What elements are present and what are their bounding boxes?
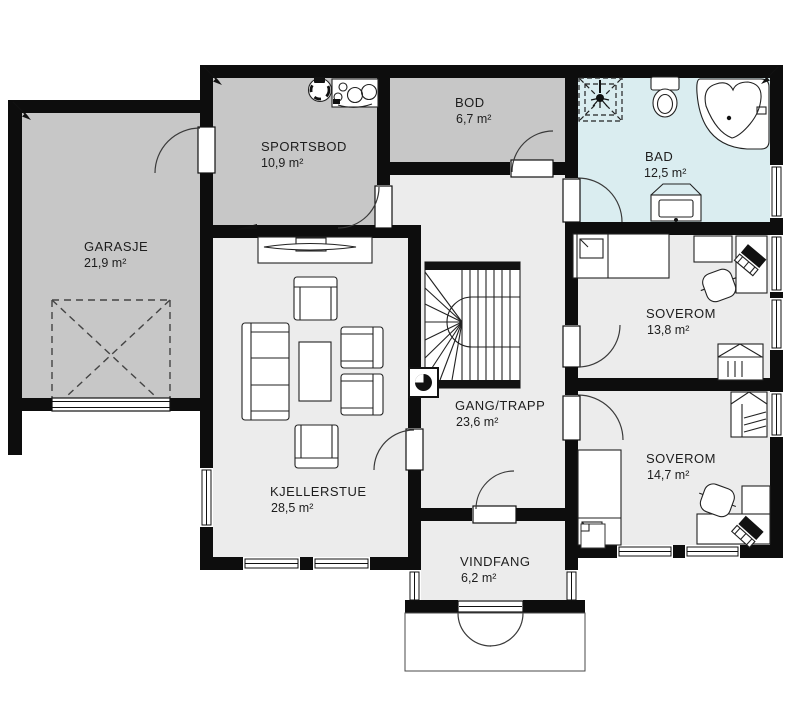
floor-plan: GARASJE 21,9 m² SPORTSBOD 10,9 m² BOD 6,… xyxy=(0,0,797,720)
room-area-sportsbod: 10,9 m² xyxy=(261,156,303,170)
armchair-icon xyxy=(341,327,383,368)
room-area-soverom2: 14,7 m² xyxy=(647,468,689,482)
exterior-step xyxy=(581,524,605,548)
room-label-soverom2: SOVEROM xyxy=(646,451,716,466)
room-area-kjellerstue: 28,5 m² xyxy=(271,501,313,515)
room-area-bod: 6,7 m² xyxy=(456,112,491,126)
armchair-icon xyxy=(295,425,338,468)
stairs-icon xyxy=(425,262,520,388)
room-label-garasje: GARASJE xyxy=(84,239,148,254)
coffee-table-icon xyxy=(299,342,331,401)
room-label-gang: GANG/TRAPP xyxy=(455,398,545,413)
wardrobe-icon xyxy=(731,392,767,437)
wardrobe-icon xyxy=(718,344,763,380)
counter-icon xyxy=(332,79,378,107)
window-soverom2-right xyxy=(772,394,781,435)
room-area-bad: 12,5 m² xyxy=(644,166,686,180)
tv-bench-icon xyxy=(258,237,372,263)
room-area-vindfang: 6,2 m² xyxy=(461,571,496,585)
room-area-gang: 23,6 m² xyxy=(456,415,498,429)
window-soverom2-bottom-a xyxy=(619,547,671,556)
nightstand-icon xyxy=(694,236,732,262)
toilet-icon xyxy=(651,77,679,117)
window-soverom1-right-a xyxy=(772,237,781,290)
chimney-icon xyxy=(409,368,438,397)
window-vindfang-right xyxy=(567,572,576,600)
room-label-vindfang: VINDFANG xyxy=(460,554,530,569)
entrance-double-door-icon xyxy=(458,601,523,646)
window-soverom1-right-b xyxy=(772,300,781,348)
floor-plan-svg: GARASJE 21,9 m² SPORTSBOD 10,9 m² BOD 6,… xyxy=(0,0,797,720)
room-label-bad: BAD xyxy=(645,149,673,164)
window-kjellerstue-left xyxy=(202,470,211,525)
room-area-soverom1: 13,8 m² xyxy=(647,323,689,337)
armchair-icon xyxy=(294,277,337,320)
room-label-bod: BOD xyxy=(455,95,485,110)
bed-icon xyxy=(573,234,669,278)
window-soverom2-bottom-b xyxy=(687,547,738,556)
entrance-porch xyxy=(405,613,585,671)
room-label-kjellerstue: KJELLERSTUE xyxy=(270,484,367,499)
room-label-sportsbod: SPORTSBOD xyxy=(261,139,347,154)
window-kjellerstue-bottom-b xyxy=(315,559,368,568)
garage-vehicle-door-opening xyxy=(52,398,170,411)
window-bad-right xyxy=(772,167,781,216)
room-area-garasje: 21,9 m² xyxy=(84,256,126,270)
armchair-icon xyxy=(341,374,383,415)
window-vindfang-left xyxy=(410,572,419,600)
window-kjellerstue-bottom-a xyxy=(245,559,298,568)
room-label-soverom1: SOVEROM xyxy=(646,306,716,321)
sofa-icon xyxy=(242,323,289,420)
